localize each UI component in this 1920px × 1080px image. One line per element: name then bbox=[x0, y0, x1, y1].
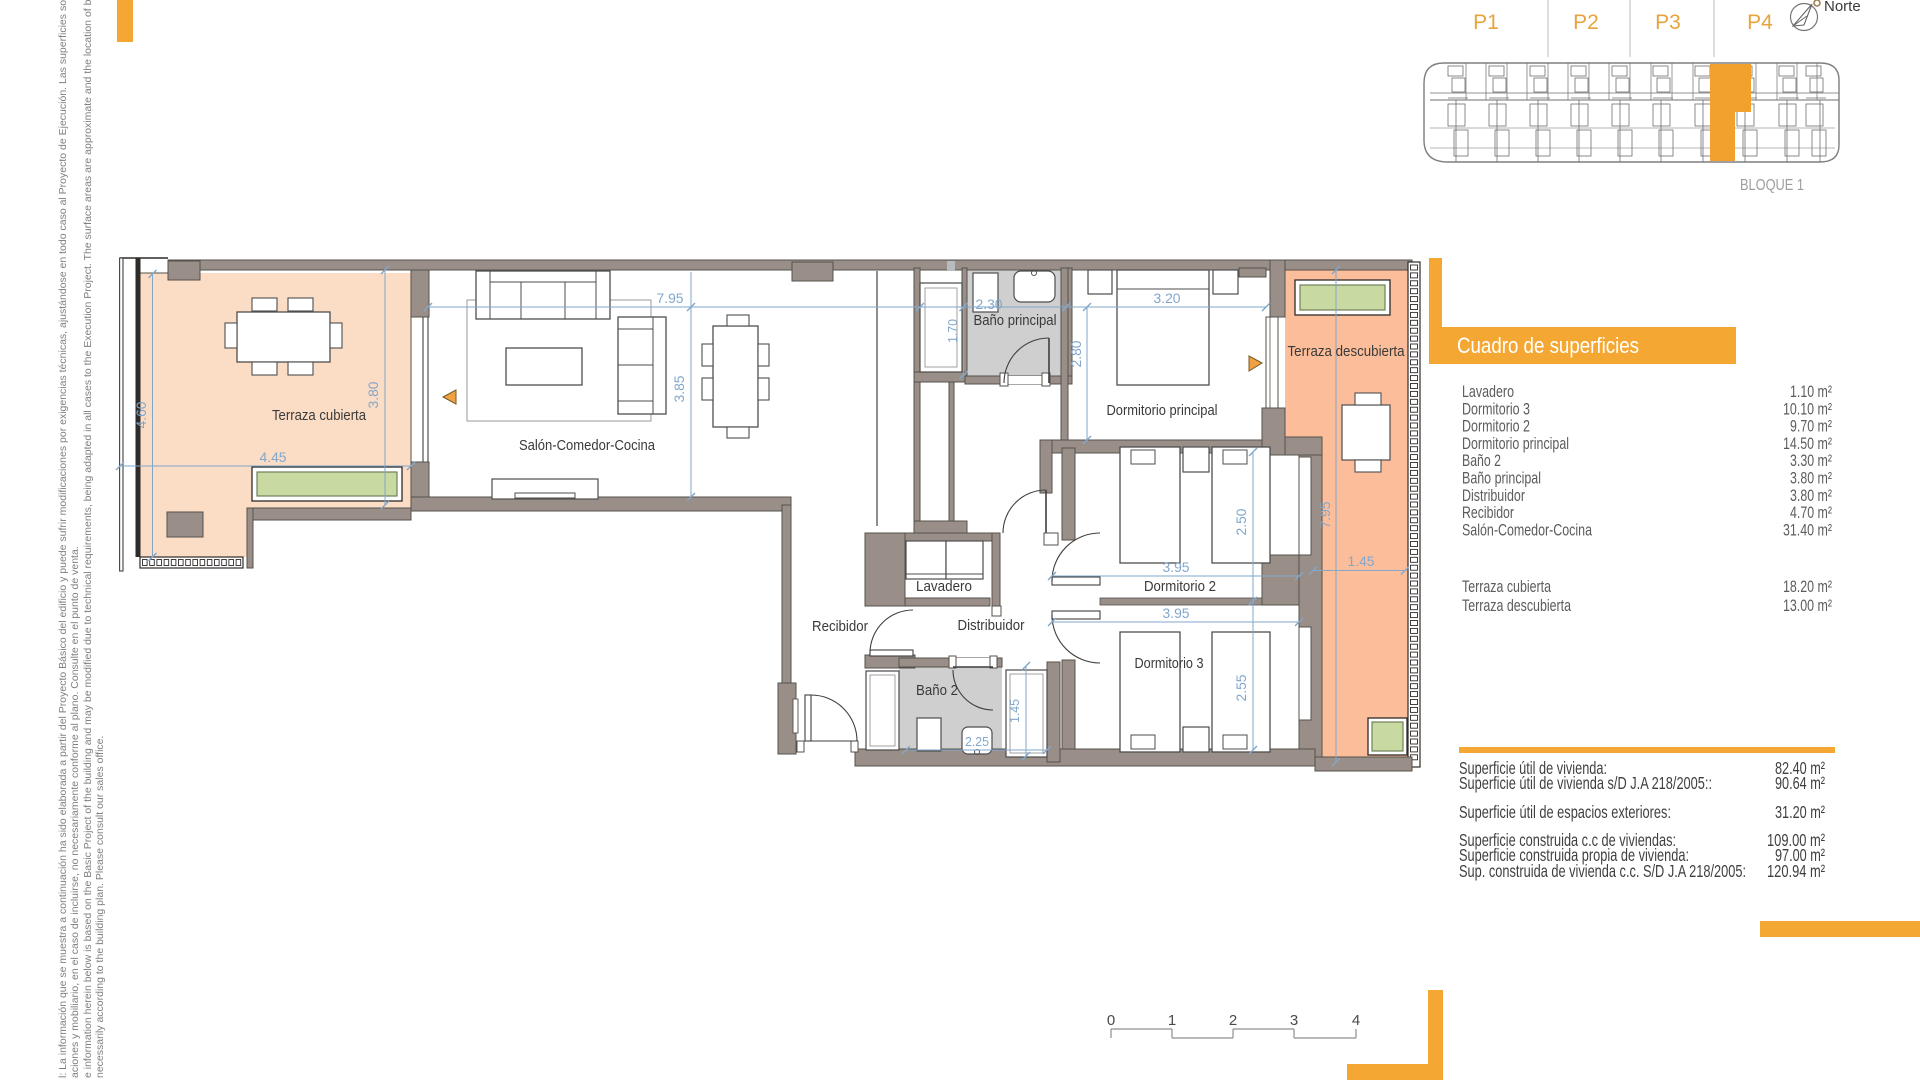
svg-text:Terraza cubierta: Terraza cubierta bbox=[1462, 577, 1551, 596]
svg-text:3.95: 3.95 bbox=[1163, 559, 1190, 575]
svg-text:Dormitorio 3: Dormitorio 3 bbox=[1462, 399, 1530, 418]
svg-text:4.45: 4.45 bbox=[260, 449, 287, 465]
svg-text:1.45: 1.45 bbox=[1348, 553, 1375, 569]
svg-text:3.95: 3.95 bbox=[1163, 605, 1190, 621]
svg-text:90.64 m²: 90.64 m² bbox=[1775, 773, 1825, 793]
svg-text:1: 1 bbox=[1168, 1012, 1176, 1029]
svg-text:BLOQUE 1: BLOQUE 1 bbox=[1740, 177, 1804, 194]
svg-text:31.20 m²: 31.20 m² bbox=[1775, 802, 1825, 822]
svg-text:Sup. construida de vivienda c.: Sup. construida de vivienda c.c. S/D J.A… bbox=[1459, 861, 1746, 881]
svg-text:2.55: 2.55 bbox=[1233, 674, 1249, 701]
svg-text:14.50 m²: 14.50 m² bbox=[1783, 434, 1832, 453]
svg-text:Recibidor: Recibidor bbox=[812, 619, 868, 635]
svg-text:3.80 m²: 3.80 m² bbox=[1790, 469, 1832, 488]
svg-text:3.30 m²: 3.30 m² bbox=[1790, 451, 1832, 470]
svg-text:necessarily according to the b: necessarily according to the building pl… bbox=[94, 736, 106, 1078]
svg-text:9.70 m²: 9.70 m² bbox=[1790, 417, 1832, 436]
svg-text:4: 4 bbox=[1352, 1012, 1360, 1029]
svg-text:Baño 2: Baño 2 bbox=[1462, 451, 1501, 470]
svg-text:Terraza cubierta: Terraza cubierta bbox=[272, 408, 367, 424]
svg-text:4.60: 4.60 bbox=[133, 401, 149, 428]
svg-text:l: La información que se muest: l: La información que se muestra a conti… bbox=[57, 0, 69, 1078]
svg-text:P3: P3 bbox=[1655, 11, 1681, 34]
svg-text:Dormitorio 2: Dormitorio 2 bbox=[1144, 579, 1216, 595]
svg-text:Baño principal: Baño principal bbox=[974, 313, 1057, 329]
svg-text:2.80: 2.80 bbox=[1068, 340, 1084, 367]
svg-text:31.40 m²: 31.40 m² bbox=[1783, 520, 1832, 539]
svg-text:P4: P4 bbox=[1747, 11, 1773, 34]
svg-text:Dormitorio 3: Dormitorio 3 bbox=[1135, 656, 1204, 672]
svg-text:10.10 m²: 10.10 m² bbox=[1783, 399, 1832, 418]
svg-text:aciones y mobiliario, en el ca: aciones y mobiliario, en el caso de incl… bbox=[69, 546, 81, 1078]
svg-text:Superficie útil de espacios ex: Superficie útil de espacios exteriores: bbox=[1459, 802, 1671, 822]
svg-text:Salón-Comedor-Cocina: Salón-Comedor-Cocina bbox=[1462, 520, 1592, 539]
svg-text:18.20 m²: 18.20 m² bbox=[1783, 577, 1832, 596]
svg-text:Dormitorio 2: Dormitorio 2 bbox=[1462, 417, 1530, 436]
svg-text:Distribuidor: Distribuidor bbox=[958, 618, 1025, 634]
svg-text:Dormitorio principal: Dormitorio principal bbox=[1107, 403, 1218, 419]
svg-text:Dormitorio principal: Dormitorio principal bbox=[1462, 434, 1569, 453]
svg-text:1.45: 1.45 bbox=[1007, 699, 1022, 723]
svg-text:2.50: 2.50 bbox=[1233, 508, 1249, 535]
svg-text:7.95: 7.95 bbox=[1317, 501, 1333, 528]
svg-text:2: 2 bbox=[1229, 1012, 1237, 1029]
svg-text:0: 0 bbox=[1107, 1012, 1115, 1029]
svg-text:1.70: 1.70 bbox=[945, 319, 960, 343]
svg-text:3.80: 3.80 bbox=[365, 381, 381, 408]
svg-text:Lavadero: Lavadero bbox=[916, 579, 972, 595]
svg-text:Recibidor: Recibidor bbox=[1462, 503, 1514, 522]
svg-text:Baño 2: Baño 2 bbox=[916, 683, 958, 699]
svg-text:Salón-Comedor-Cocina: Salón-Comedor-Cocina bbox=[519, 438, 656, 454]
svg-text:4.70 m²: 4.70 m² bbox=[1790, 503, 1832, 522]
svg-text:7.95: 7.95 bbox=[657, 290, 684, 306]
svg-text:2.25: 2.25 bbox=[965, 734, 989, 749]
svg-text:Terraza descubierta: Terraza descubierta bbox=[1462, 596, 1571, 615]
svg-text:Lavadero: Lavadero bbox=[1462, 382, 1514, 401]
svg-text:Superficie útil de vivienda s/: Superficie útil de vivienda s/D J.A 218/… bbox=[1459, 773, 1712, 793]
svg-text:13.00 m²: 13.00 m² bbox=[1783, 596, 1832, 615]
svg-text:Cuadro de superficies: Cuadro de superficies bbox=[1457, 333, 1639, 358]
svg-text:120.94 m²: 120.94 m² bbox=[1767, 861, 1825, 881]
svg-text:P2: P2 bbox=[1573, 11, 1599, 34]
svg-text:Distribuidor: Distribuidor bbox=[1462, 486, 1525, 505]
svg-text:e information herein below is: e information herein below is based on t… bbox=[82, 0, 94, 1078]
svg-text:3: 3 bbox=[1290, 1012, 1298, 1029]
svg-text:Norte: Norte bbox=[1824, 0, 1861, 15]
svg-text:3.80 m²: 3.80 m² bbox=[1790, 486, 1832, 505]
svg-text:3.85: 3.85 bbox=[671, 375, 687, 402]
svg-text:1.10 m²: 1.10 m² bbox=[1790, 382, 1832, 401]
svg-text:Terraza descubierta: Terraza descubierta bbox=[1288, 344, 1406, 360]
svg-text:3.20: 3.20 bbox=[1154, 290, 1181, 306]
svg-text:2.30: 2.30 bbox=[976, 296, 1003, 312]
svg-text:Baño principal: Baño principal bbox=[1462, 469, 1541, 488]
svg-text:P1: P1 bbox=[1473, 11, 1499, 34]
